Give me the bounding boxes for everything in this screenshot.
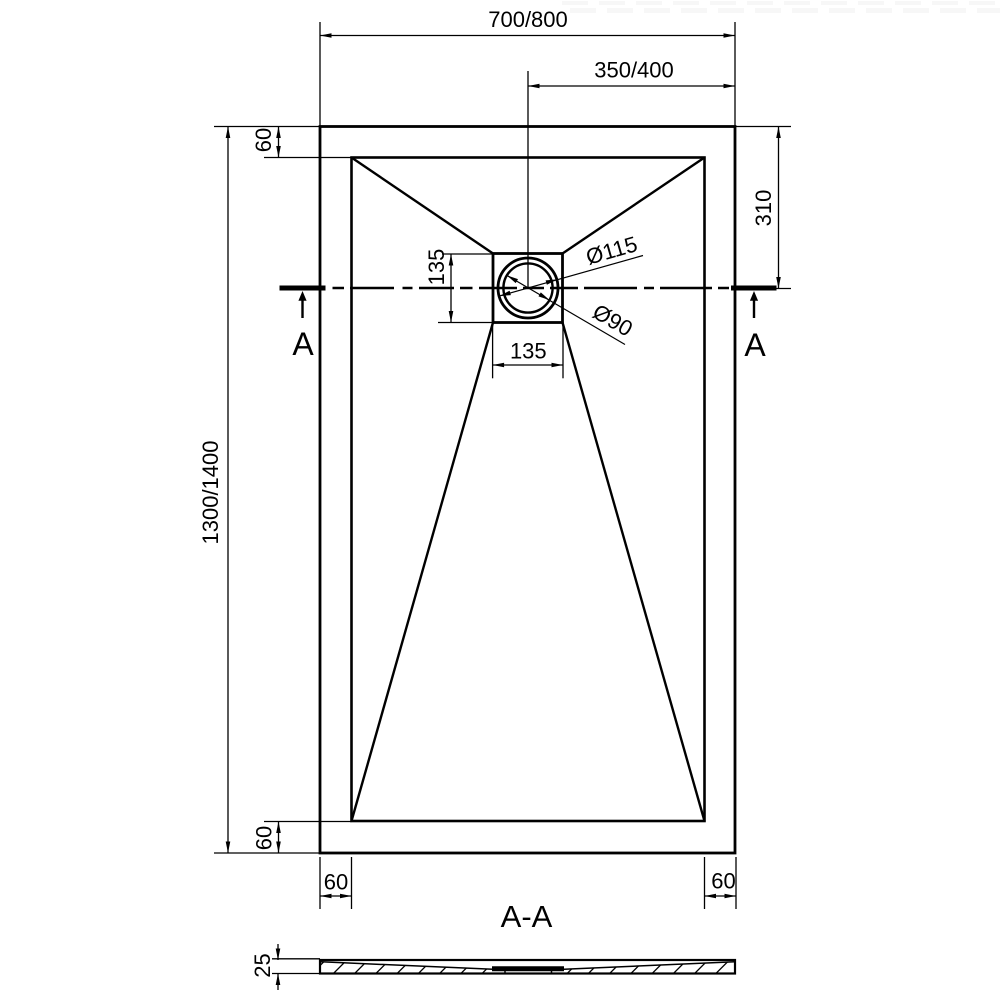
- svg-text:350/400: 350/400: [594, 58, 674, 83]
- svg-text:60: 60: [324, 870, 348, 895]
- svg-text:60: 60: [251, 128, 276, 152]
- svg-text:310: 310: [751, 190, 776, 227]
- svg-text:60: 60: [711, 869, 735, 894]
- svg-text:135: 135: [510, 339, 547, 364]
- svg-text:135: 135: [424, 249, 449, 286]
- svg-text:25: 25: [250, 953, 275, 977]
- svg-text:A: A: [292, 326, 314, 362]
- svg-text:A: A: [744, 327, 766, 363]
- svg-text:700/800: 700/800: [488, 7, 568, 32]
- svg-text:1300/1400: 1300/1400: [198, 441, 223, 545]
- svg-text:Ø90: Ø90: [588, 299, 637, 341]
- svg-text:60: 60: [252, 826, 277, 850]
- svg-text:A-A: A-A: [501, 899, 553, 934]
